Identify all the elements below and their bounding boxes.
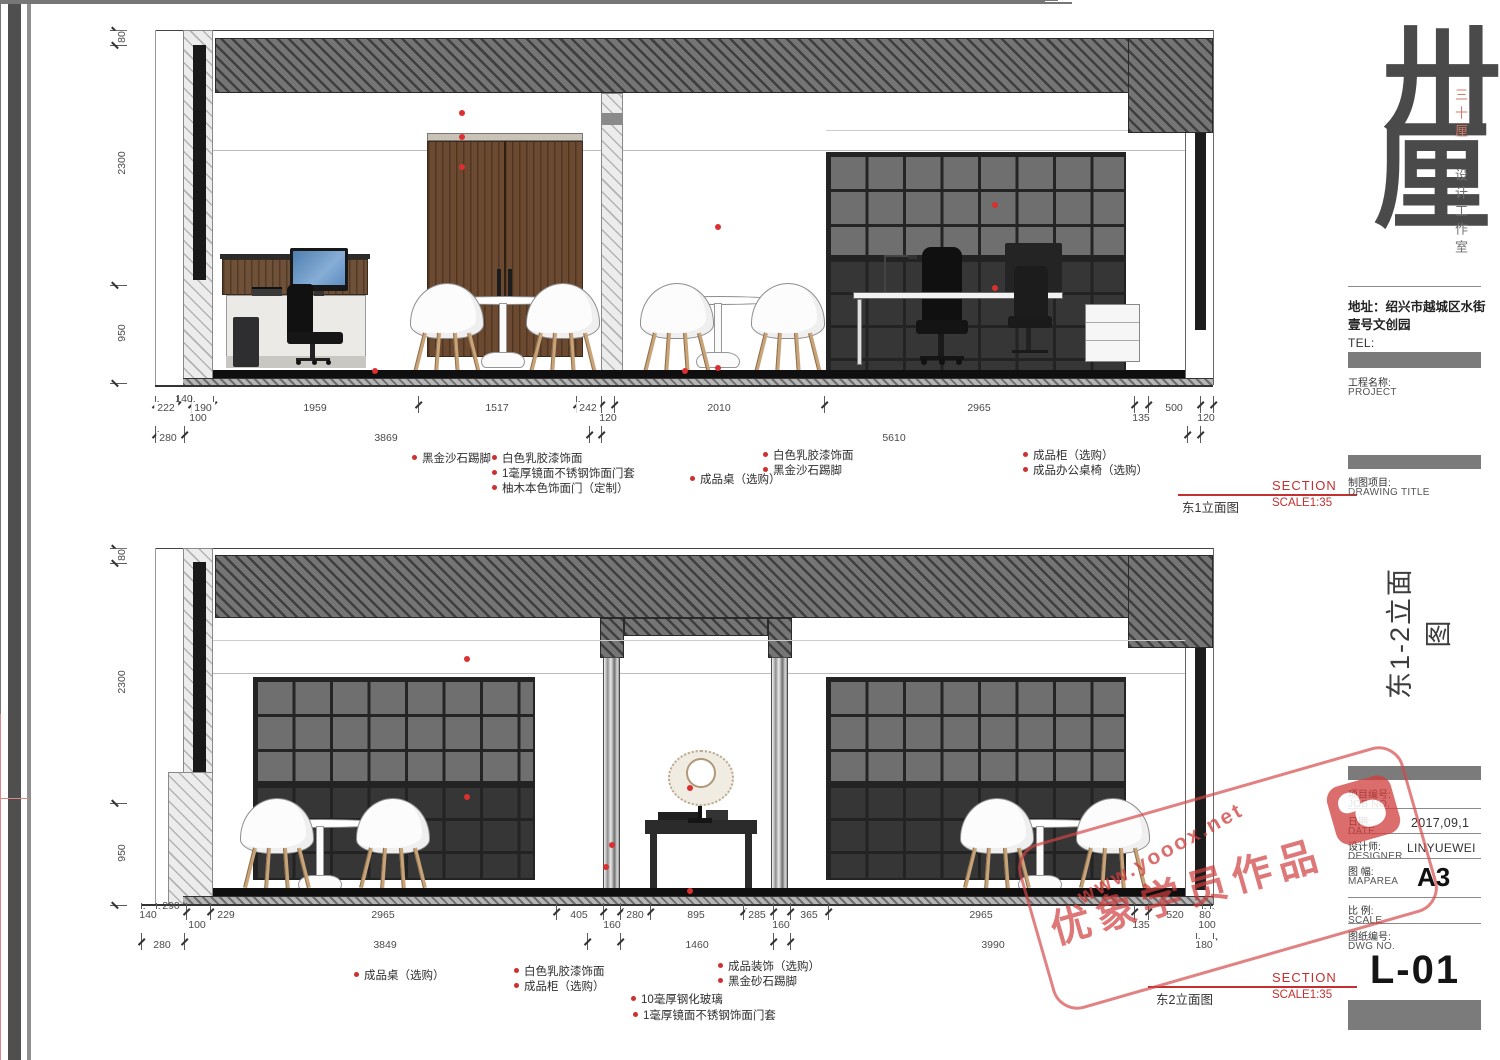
left-wall-footing	[168, 772, 213, 905]
chair-leg	[643, 333, 657, 374]
table-stem	[499, 303, 507, 354]
console-leg	[745, 834, 752, 890]
dim-label: 950	[114, 324, 130, 342]
desk-lamp-stem	[884, 257, 886, 293]
chair-shell	[751, 283, 825, 339]
leader-line	[0, 714, 1, 798]
dim-label: 140	[136, 909, 160, 921]
dim-tick	[213, 396, 214, 413]
dim-tick	[1196, 933, 1197, 950]
dim-label: 2300	[114, 670, 130, 693]
dim-label: 160	[772, 919, 790, 931]
floor-band	[213, 370, 1185, 378]
dim-tick	[1213, 396, 1214, 413]
dim-tick	[1200, 396, 1201, 413]
dim-tick	[824, 396, 825, 413]
exec-chair-seat	[916, 320, 968, 334]
office-chair-caster	[312, 360, 317, 365]
mid-wall-column	[601, 93, 623, 372]
dim-label: 285	[745, 909, 769, 921]
glass-partition-upper	[826, 677, 1126, 783]
door-head	[427, 133, 583, 141]
gray-bar	[1348, 352, 1481, 368]
chair-leg	[754, 333, 768, 374]
chair-shell	[410, 283, 484, 339]
dim-label: 190	[191, 402, 215, 414]
date-value: 2017,09,1	[1411, 816, 1469, 830]
table-base	[481, 352, 525, 368]
leader-dot	[459, 110, 465, 116]
dim-tick	[110, 285, 127, 286]
dim-label: 1460	[682, 939, 711, 951]
dim-label: 405	[567, 909, 591, 921]
office-chair-caster	[296, 360, 301, 365]
gray-bar	[1348, 766, 1481, 780]
slab-line-bottom	[155, 548, 1213, 549]
dim-label: 2965	[964, 402, 993, 414]
dim-tick	[601, 426, 602, 443]
annotation-label: 白色乳胶漆饰面	[514, 963, 605, 979]
project-label-en: PROJECT	[1348, 387, 1397, 398]
chair-leg	[808, 333, 822, 374]
dim-label: 135	[1132, 412, 1150, 424]
floor-baseline	[155, 385, 1213, 387]
chair-leg	[467, 333, 481, 374]
leader-dot	[715, 224, 721, 230]
page-edge-bar	[8, 0, 21, 1060]
chair-leg	[413, 848, 427, 889]
dim-tick	[1187, 426, 1188, 443]
gray-bar	[1348, 455, 1481, 469]
decor-wreath-hole	[686, 758, 716, 788]
chair-leg	[569, 333, 576, 374]
chair-leg	[283, 848, 290, 889]
dim-tick	[177, 396, 178, 413]
dim-label: 500	[1162, 402, 1186, 414]
table-stem	[1036, 826, 1044, 877]
maparea-en: MAPAREA	[1348, 876, 1398, 887]
dim-label: 895	[684, 909, 708, 921]
dim-tick	[191, 396, 192, 413]
dim-label: 2965	[368, 909, 397, 921]
dim-label: 120	[1197, 412, 1215, 424]
floor-baseline	[141, 904, 1213, 906]
drawing-sheet: SECTION 东1立面图 SCALE1:35 SECTION 东2立面图 SC…	[0, 0, 1500, 1060]
annotation-label: 白色乳胶漆饰面	[492, 450, 583, 466]
door-handle	[508, 269, 512, 299]
window-mullion	[1195, 133, 1206, 330]
dim-tick	[141, 933, 142, 950]
chair-leg	[434, 333, 441, 374]
designer-en: DESIGNER	[1348, 851, 1403, 862]
logo-side-red: 三十厘	[1450, 88, 1469, 142]
dim-label: 120	[599, 412, 617, 424]
table-stem	[316, 826, 324, 877]
dim-label: 160	[603, 919, 621, 931]
title-block: 卅 厘 三十厘 设计工作室 地址：绍兴市越城区水街 壹号文创园 TEL: 工程名…	[1345, 0, 1495, 1060]
shell-chair	[237, 798, 317, 890]
exec-chair-back	[922, 247, 962, 325]
row-sep	[1348, 833, 1481, 834]
dim-label: 80	[114, 31, 130, 43]
dim-line	[0, 3, 1072, 4]
ceiling-beam	[215, 38, 1185, 93]
chair-leg	[264, 848, 271, 889]
window-mullion	[1195, 648, 1206, 890]
dim-line	[0, 2, 1072, 3]
dim-label: 229	[214, 909, 238, 921]
annotation-label: 成品柜（选购）	[514, 978, 605, 994]
dim-tick	[1148, 396, 1149, 413]
dim-label: 3849	[370, 939, 399, 951]
chair-leg	[399, 848, 406, 889]
right-wall-line	[1185, 648, 1186, 905]
leader-line	[0, 799, 1, 1060]
dim-tick	[184, 933, 185, 950]
studio-logo: 卅 厘	[1383, 28, 1500, 245]
dim-label: 950	[114, 844, 130, 862]
mid-wall-band	[601, 113, 623, 125]
mobile-cabinet	[1085, 304, 1140, 362]
ceiling-line	[213, 150, 1185, 151]
annotation-label: 成品桌（选购）	[354, 967, 445, 983]
leader-dot	[464, 656, 470, 662]
decor-stand-base	[688, 818, 712, 823]
dim-label: 280	[150, 939, 174, 951]
chair-leg	[775, 333, 782, 374]
dim-label: 280	[623, 909, 647, 921]
recessed-ceiling-band	[624, 618, 768, 636]
shell-chair	[407, 283, 487, 375]
dim-tick	[1213, 933, 1214, 950]
office-chair-caster	[326, 360, 331, 365]
task-chair-seat	[1008, 316, 1052, 328]
exec-chair-caster	[921, 359, 927, 365]
monitor-screen	[293, 251, 345, 285]
pc-tower	[233, 317, 259, 367]
floor-hatch	[183, 896, 1213, 904]
shell-chair	[637, 283, 717, 375]
annotation-label: 成品办公桌椅（选购）	[1023, 462, 1148, 478]
section-scale: SCALE1:35	[1272, 989, 1332, 1001]
tel-label: TEL:	[1348, 336, 1375, 350]
console-leg	[650, 834, 657, 890]
scale-en: SCALE	[1348, 915, 1382, 926]
dim-tick	[773, 933, 774, 950]
chair-leg	[1003, 848, 1010, 889]
gray-bar	[1348, 1000, 1481, 1030]
column-head	[600, 618, 624, 658]
dim-tick	[1200, 426, 1201, 443]
dim-tick	[576, 396, 577, 413]
dim-label: 100	[188, 919, 206, 931]
annotation-label: 10毫厚钢化玻璃	[631, 991, 723, 1007]
chair-leg	[683, 333, 690, 374]
lintel-line	[826, 130, 1128, 131]
dim-label: 1959	[300, 402, 329, 414]
chair-leg	[359, 848, 373, 889]
exec-chair-caster	[939, 359, 945, 365]
dim-line	[0, 1, 1045, 2]
logo-side-gray: 设计工作室	[1450, 168, 1469, 258]
dim-label: 135	[1132, 919, 1150, 931]
chair-leg	[1017, 848, 1031, 889]
dim-label: 242	[576, 402, 600, 414]
section-rule	[1178, 494, 1357, 496]
books	[252, 287, 282, 296]
section-label-east2: SECTION 东2立面图 SCALE1:35	[1148, 970, 1358, 1002]
dim-label: 3990	[978, 939, 1007, 951]
section-scale: SCALE1:35	[1272, 497, 1332, 509]
address-line2: 壹号文创园	[1348, 314, 1411, 333]
slab-line-top	[155, 30, 1213, 31]
chair-shell	[1076, 798, 1150, 854]
dim-label: 100	[189, 412, 207, 424]
chair-leg	[243, 848, 257, 889]
dim-label: 3869	[371, 432, 400, 444]
chair-leg	[297, 848, 311, 889]
chair-shell	[640, 283, 714, 339]
dim-line	[0, 0, 1058, 1]
door-handle	[497, 269, 501, 299]
dim-label: 140	[175, 393, 193, 405]
shell-chair	[748, 283, 828, 375]
drawing-title-label-en: DRAWING TITLE	[1348, 487, 1430, 498]
dim-tick	[601, 396, 602, 413]
annotation-label: 黑金沙石踢脚	[412, 450, 491, 466]
logo-char: 厘	[1373, 123, 1491, 232]
dim-tick	[790, 933, 791, 950]
shell-chair	[523, 283, 603, 375]
chair-leg	[550, 333, 557, 374]
section-name: 东2立面图	[1156, 989, 1213, 1008]
dim-tick	[110, 563, 127, 564]
monitor-stand	[314, 291, 324, 296]
task-chair-stem	[1026, 328, 1031, 350]
chair-leg	[794, 333, 801, 374]
designer-value: LINYUEWEI	[1407, 841, 1476, 855]
glass-partition-upper	[253, 677, 535, 783]
chair-shell	[240, 798, 314, 854]
divider	[1348, 286, 1481, 287]
annotation-label: 柚木本色饰面门（定制）	[492, 480, 629, 496]
mirror-column	[603, 657, 620, 897]
dim-tick	[155, 426, 156, 443]
dim-label: 180	[1192, 939, 1216, 951]
dim-label: 1517	[482, 402, 511, 414]
dim-label: 2300	[114, 151, 130, 174]
dim-label: 520	[1163, 909, 1187, 921]
dim-tick	[418, 396, 419, 413]
section-rule	[1148, 986, 1357, 988]
chair-shell	[356, 798, 430, 854]
ceiling-beam-right-step	[1128, 38, 1213, 133]
dim-tick	[620, 933, 621, 950]
dim-label: 2965	[966, 909, 995, 921]
exec-chair-caster	[956, 359, 962, 365]
section-word: SECTION	[1272, 970, 1337, 985]
dim-tick	[110, 45, 127, 46]
right-wall-line	[1213, 548, 1214, 905]
address-line1: 地址：绍兴市越城区水街	[1348, 296, 1486, 315]
chair-leg	[453, 333, 460, 374]
desk-leg	[857, 299, 862, 365]
dim-line	[0, 357, 1, 714]
annotation-label: 1毫厚镜面不锈钢饰面门套	[492, 465, 635, 481]
annotation-label: 黑金沙石踢脚	[763, 462, 842, 478]
row-sep	[1348, 923, 1481, 924]
mirror-column	[771, 657, 788, 897]
date-en: DATE	[1348, 826, 1375, 837]
office-chair-seat	[287, 332, 343, 344]
extension-line	[155, 30, 156, 385]
chair-leg	[984, 848, 991, 889]
shell-chair	[957, 798, 1037, 890]
extension-line	[155, 548, 156, 905]
task-chair-base	[1012, 350, 1048, 353]
annotation-label: 黑金砂石踢脚	[718, 973, 797, 989]
left-wall-frame	[193, 562, 206, 802]
page-edge-bar-thin	[27, 0, 31, 1060]
chair-leg	[664, 333, 671, 374]
glass-partition-lower	[826, 257, 1126, 372]
exec-chair-stem	[938, 334, 944, 356]
ceiling-beam	[215, 555, 1185, 618]
cabinet-drawer-line	[1086, 322, 1139, 323]
chair-leg	[380, 848, 387, 889]
column-head	[768, 618, 792, 658]
cabinet-drawer-line	[1086, 340, 1139, 341]
maparea-value: A3	[1417, 862, 1450, 893]
left-wall-frame	[193, 45, 206, 280]
chair-leg	[529, 333, 543, 374]
floor-hatch	[183, 378, 1213, 385]
section-word: SECTION	[1272, 478, 1337, 493]
dim-label: 80	[114, 549, 130, 561]
dwg-number: L-01	[1345, 948, 1485, 993]
section-name: 东1立面图	[1182, 497, 1239, 516]
annotation-label: 成品柜（选购）	[1023, 447, 1114, 463]
right-wall-line	[1213, 30, 1214, 385]
chair-shell	[960, 798, 1034, 854]
dim-line	[0, 4, 1, 357]
dim-tick	[110, 905, 127, 906]
right-wall-line	[1185, 133, 1186, 385]
dim-tick	[589, 426, 590, 443]
dim-label: 222	[154, 402, 178, 414]
shell-chair	[353, 798, 433, 890]
section-label-east1: SECTION 东1立面图 SCALE1:35	[1178, 478, 1358, 510]
wall-line	[213, 673, 1185, 674]
glass-partition-upper	[826, 152, 1126, 257]
chair-leg	[697, 333, 711, 374]
dim-label: 2010	[704, 402, 733, 414]
ceiling-beam-right-step	[1128, 555, 1213, 648]
dim-label: 5610	[879, 432, 908, 444]
row-sep	[1348, 858, 1481, 859]
desk-lamp-head	[908, 255, 917, 259]
dim-tick	[587, 933, 588, 950]
dim-tick	[1134, 396, 1135, 413]
row-sep	[1348, 897, 1481, 898]
dim-tick	[110, 803, 127, 804]
dim-tick	[614, 396, 615, 413]
dim-tick	[110, 548, 127, 549]
dim-label: 80	[1196, 909, 1214, 921]
chair-leg	[963, 848, 977, 889]
dim-label: 365	[797, 909, 821, 921]
dim-tick	[110, 30, 127, 31]
dim-tick	[155, 396, 156, 413]
drawing-title-vertical: 东1-2立面图	[1378, 553, 1408, 713]
dim-tick	[110, 383, 127, 384]
annotation-label: 成品桌（选购）	[690, 471, 781, 487]
ceiling-line	[213, 640, 1185, 641]
dim-label: 100	[1198, 919, 1216, 931]
annotation-label: 白色乳胶漆饰面	[763, 447, 854, 463]
dim-tick	[184, 426, 185, 443]
annotation-label: 成品装饰（选购）	[718, 958, 820, 974]
row-sep	[1348, 808, 1481, 809]
dim-label: 280	[156, 432, 180, 444]
chair-leg	[583, 333, 597, 374]
chair-leg	[413, 333, 427, 374]
chair-shell	[526, 283, 600, 339]
annotation-label: 1毫厚镜面不锈钢饰面门套	[633, 1007, 776, 1023]
